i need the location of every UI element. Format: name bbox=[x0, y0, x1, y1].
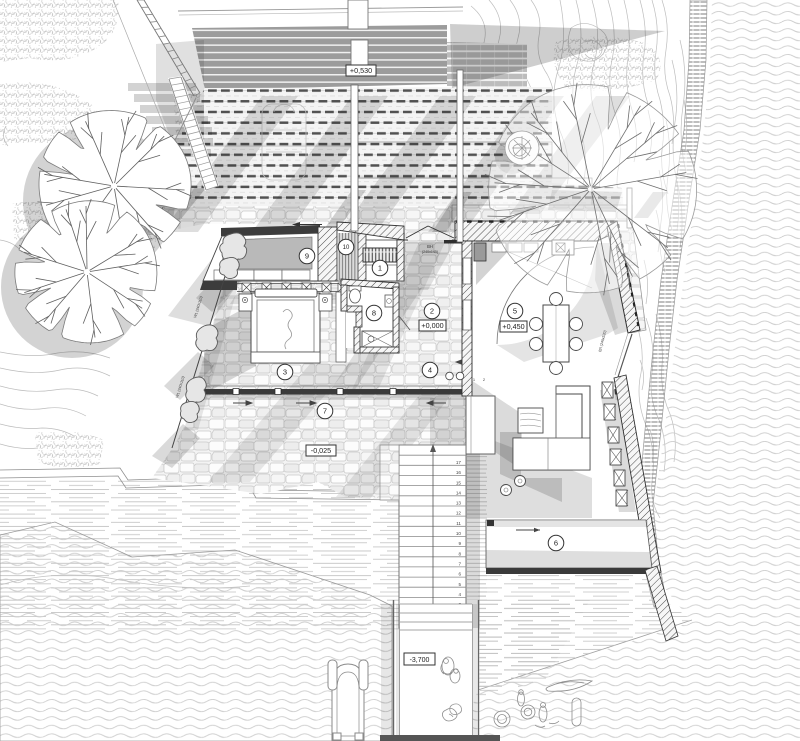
svg-text:11: 11 bbox=[456, 521, 461, 526]
svg-text:3: 3 bbox=[283, 368, 287, 377]
svg-text:(240х145): (240х145) bbox=[422, 250, 438, 254]
svg-text:4: 4 bbox=[428, 366, 432, 375]
svg-text:+0,530: +0,530 bbox=[350, 66, 372, 75]
svg-text:10: 10 bbox=[343, 245, 350, 251]
svg-text:14: 14 bbox=[456, 490, 462, 495]
svg-text:1: 1 bbox=[378, 264, 382, 273]
svg-text:8: 8 bbox=[372, 309, 376, 318]
svg-text:15: 15 bbox=[456, 480, 462, 485]
svg-text:8: 8 bbox=[458, 551, 461, 556]
svg-text:10: 10 bbox=[456, 531, 462, 536]
svg-text:ВН: ВН bbox=[427, 244, 433, 249]
svg-text:5: 5 bbox=[458, 582, 461, 587]
svg-text:6: 6 bbox=[554, 539, 558, 548]
svg-text:2: 2 bbox=[430, 307, 434, 316]
svg-text:-3,700: -3,700 bbox=[410, 657, 430, 664]
svg-text:5: 5 bbox=[513, 307, 517, 316]
svg-text:-0,025: -0,025 bbox=[311, 446, 331, 455]
svg-text:9: 9 bbox=[458, 541, 461, 546]
svg-text:13: 13 bbox=[456, 501, 462, 506]
svg-text:4: 4 bbox=[458, 592, 461, 597]
svg-text:12: 12 bbox=[456, 511, 462, 516]
svg-text:+0,450: +0,450 bbox=[502, 322, 524, 331]
svg-text:17: 17 bbox=[456, 460, 462, 465]
svg-text:16: 16 bbox=[456, 470, 462, 475]
svg-text:6: 6 bbox=[458, 572, 461, 577]
svg-text:9: 9 bbox=[305, 252, 309, 261]
svg-text:7: 7 bbox=[458, 562, 461, 567]
svg-text:+0,000: +0,000 bbox=[421, 321, 443, 330]
svg-text:7: 7 bbox=[323, 407, 327, 416]
